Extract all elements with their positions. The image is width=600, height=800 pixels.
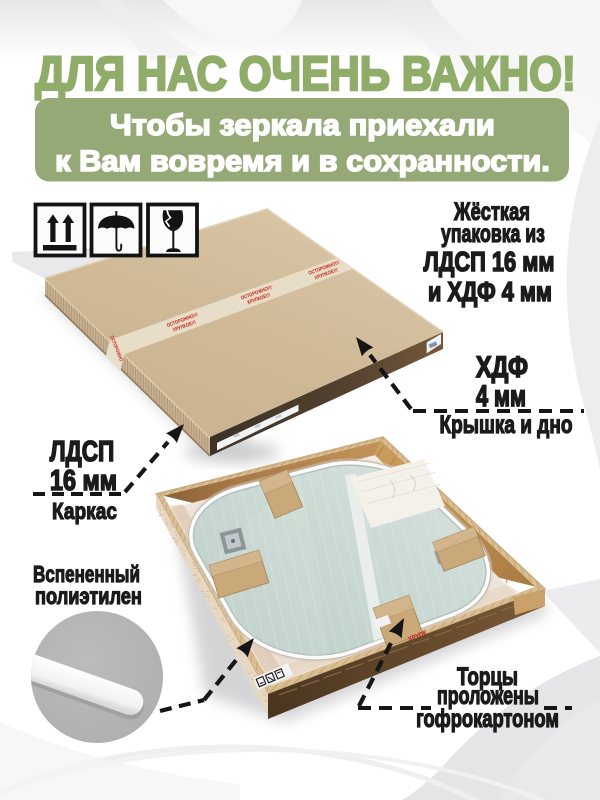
svg-text:полиэтилен: полиэтилен	[35, 584, 142, 610]
svg-text:ДЛЯ НАС ОЧЕНЬ ВАЖНО!: ДЛЯ НАС ОЧЕНЬ ВАЖНО!	[35, 46, 576, 100]
svg-text:Крышка и дно: Крышка и дно	[439, 410, 572, 438]
svg-text:к Вам вовремя и в сохранности.: к Вам вовремя и в сохранности.	[55, 144, 550, 178]
svg-text:ЛДСП 16 мм: ЛДСП 16 мм	[424, 246, 555, 277]
svg-text:Чтобы зеркала приехали: Чтобы зеркала приехали	[110, 108, 495, 141]
svg-text:4 мм: 4 мм	[476, 378, 526, 412]
svg-text:гофрокартоном: гофрокартоном	[416, 704, 559, 733]
svg-text:упаковка из: упаковка из	[441, 219, 545, 248]
svg-text:Каркас: Каркас	[52, 498, 117, 524]
svg-text:и ХДФ 4 мм: и ХДФ 4 мм	[428, 276, 552, 307]
svg-text:16 мм: 16 мм	[50, 464, 117, 497]
